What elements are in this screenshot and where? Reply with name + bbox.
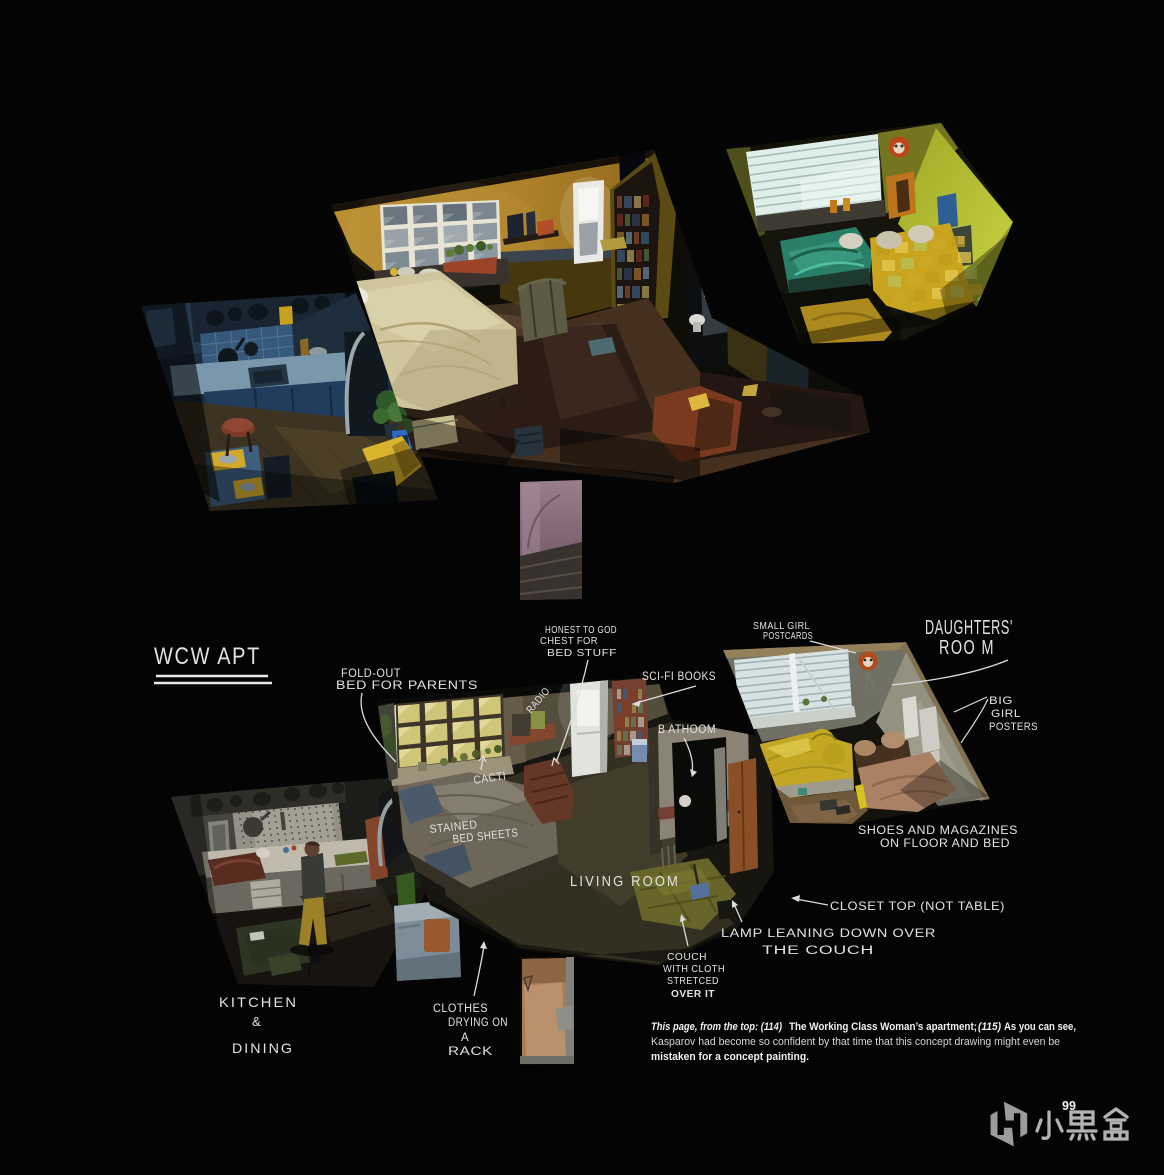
- svg-text:BED FOR PARENTS: BED FOR PARENTS: [336, 680, 478, 692]
- svg-text:THE COUCH: THE COUCH: [762, 945, 874, 957]
- svg-text:WITH CLOTH: WITH CLOTH: [663, 963, 725, 975]
- svg-text:OVER IT: OVER IT: [671, 988, 715, 1000]
- svg-text:COUCH: COUCH: [667, 951, 707, 963]
- svg-text:RACK: RACK: [448, 1046, 493, 1058]
- svg-text:A: A: [461, 1032, 469, 1044]
- svg-text:LIVING ROOM: LIVING ROOM: [570, 873, 680, 890]
- svg-text:As you can see,: As you can see,: [1004, 1021, 1076, 1033]
- svg-text:SHOES AND MAGAZINES: SHOES AND MAGAZINES: [858, 825, 1018, 837]
- svg-text:CLOSET TOP (NOT TABLE): CLOSET TOP (NOT TABLE): [830, 899, 1005, 913]
- svg-text:The Working Class Woman’s apar: The Working Class Woman’s apartment;: [789, 1021, 977, 1033]
- svg-text:Kasparov had become so confide: Kasparov had become so confident by that…: [651, 1036, 1060, 1048]
- svg-text:GIRL: GIRL: [991, 708, 1021, 720]
- svg-text:mistaken for a concept paintin: mistaken for a concept painting.: [651, 1051, 809, 1063]
- svg-text:DAUGHTERS': DAUGHTERS': [925, 617, 1013, 639]
- svg-text:(115): (115): [978, 1021, 1001, 1033]
- svg-text:STRETCED: STRETCED: [667, 975, 719, 987]
- svg-text:KITCHEN: KITCHEN: [219, 994, 298, 1010]
- svg-text:CHEST FOR: CHEST FOR: [540, 635, 598, 647]
- svg-text:B ATHOOM: B ATHOOM: [658, 724, 716, 736]
- svg-text:POSTERS: POSTERS: [989, 721, 1038, 733]
- svg-text:This page, from the top: (114): This page, from the top: (114): [651, 1021, 782, 1033]
- svg-text:BIG: BIG: [989, 695, 1013, 707]
- svg-text:LAMP LEANING DOWN OVER: LAMP LEANING DOWN OVER: [721, 928, 936, 940]
- svg-text:&: &: [252, 1014, 261, 1029]
- svg-text:SCI-FI BOOKS: SCI-FI BOOKS: [642, 671, 716, 683]
- svg-text:WCW APT: WCW APT: [154, 643, 261, 670]
- svg-text:DINING: DINING: [232, 1040, 294, 1056]
- svg-text:ON FLOOR AND BED: ON FLOOR AND BED: [880, 838, 1010, 850]
- svg-text:POSTCARDS: POSTCARDS: [763, 630, 813, 642]
- svg-text:CLOTHES: CLOTHES: [433, 1003, 488, 1015]
- svg-text:BED STUFF: BED STUFF: [547, 647, 617, 659]
- svg-text:ROO M: ROO M: [939, 637, 995, 659]
- svg-text:DRYING ON: DRYING ON: [448, 1017, 508, 1029]
- svg-text:FOLD-OUT: FOLD-OUT: [341, 668, 401, 680]
